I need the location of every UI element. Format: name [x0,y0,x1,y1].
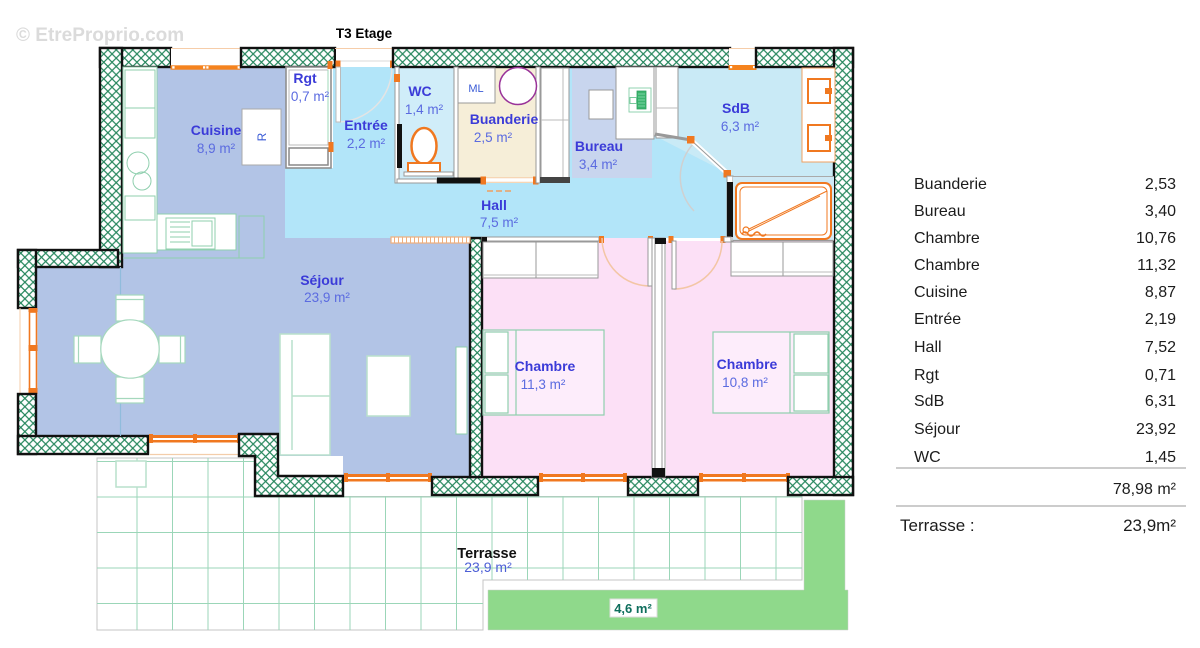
svg-text:2,19: 2,19 [1145,311,1176,328]
svg-text:1,4 m²: 1,4 m² [405,102,444,117]
svg-text:Séjour: Séjour [300,272,344,288]
svg-text:10,8 m²: 10,8 m² [722,375,768,390]
svg-text:7,5 m²: 7,5 m² [480,215,519,230]
svg-text:1,45: 1,45 [1145,449,1176,466]
svg-text:Terrasse :: Terrasse : [900,516,975,535]
svg-text:Rgt: Rgt [914,367,939,384]
svg-text:6,3 m²: 6,3 m² [721,119,760,134]
svg-text:ML: ML [468,83,483,95]
svg-text:Cuisine: Cuisine [914,284,967,301]
svg-text:2,5 m²: 2,5 m² [474,130,513,145]
svg-text:Entrée: Entrée [914,311,961,328]
svg-text:23,92: 23,92 [1136,421,1176,438]
svg-text:Buanderie: Buanderie [470,111,539,127]
svg-text:Entrée: Entrée [344,117,388,133]
svg-text:R: R [255,132,269,141]
svg-text:Bureau: Bureau [575,138,623,154]
svg-text:8,9 m²: 8,9 m² [197,141,236,156]
svg-text:Chambre: Chambre [515,358,576,374]
svg-text:0,7 m²: 0,7 m² [291,89,330,104]
svg-text:WC: WC [914,449,941,466]
svg-text:WC: WC [408,83,431,99]
svg-text:Chambre: Chambre [914,230,980,247]
svg-text:T3 Etage: T3 Etage [336,26,393,41]
svg-text:SdB: SdB [722,100,750,116]
svg-text:2,53: 2,53 [1145,176,1176,193]
svg-text:Buanderie: Buanderie [914,176,987,193]
svg-text:23,9 m²: 23,9 m² [304,290,350,305]
svg-text:Rgt: Rgt [293,70,317,86]
svg-text:3,40: 3,40 [1145,203,1176,220]
svg-text:Bureau: Bureau [914,203,966,220]
svg-text:Chambre: Chambre [914,257,980,274]
svg-text:23,9m²: 23,9m² [1123,516,1176,535]
svg-text:Hall: Hall [914,339,942,356]
svg-text:2,2 m²: 2,2 m² [347,136,386,151]
svg-text:Hall: Hall [481,197,507,213]
svg-text:6,31: 6,31 [1145,393,1176,410]
svg-text:Cuisine: Cuisine [191,122,242,138]
svg-text:78,98 m²: 78,98 m² [1113,481,1177,498]
svg-text:© EtreProprio.com: © EtreProprio.com [16,25,184,46]
svg-text:3,4 m²: 3,4 m² [579,157,618,172]
svg-text:11,3 m²: 11,3 m² [521,377,566,392]
svg-text:10,76: 10,76 [1136,230,1176,247]
svg-text:11,32: 11,32 [1137,257,1176,274]
svg-text:Séjour: Séjour [914,421,961,438]
svg-text:4,6 m²: 4,6 m² [614,601,652,616]
svg-text:23,9 m²: 23,9 m² [464,559,512,575]
svg-text:SdB: SdB [914,393,944,410]
svg-text:7,52: 7,52 [1145,339,1176,356]
svg-text:Chambre: Chambre [717,356,778,372]
svg-text:0,71: 0,71 [1145,367,1176,384]
svg-text:8,87: 8,87 [1145,284,1176,301]
